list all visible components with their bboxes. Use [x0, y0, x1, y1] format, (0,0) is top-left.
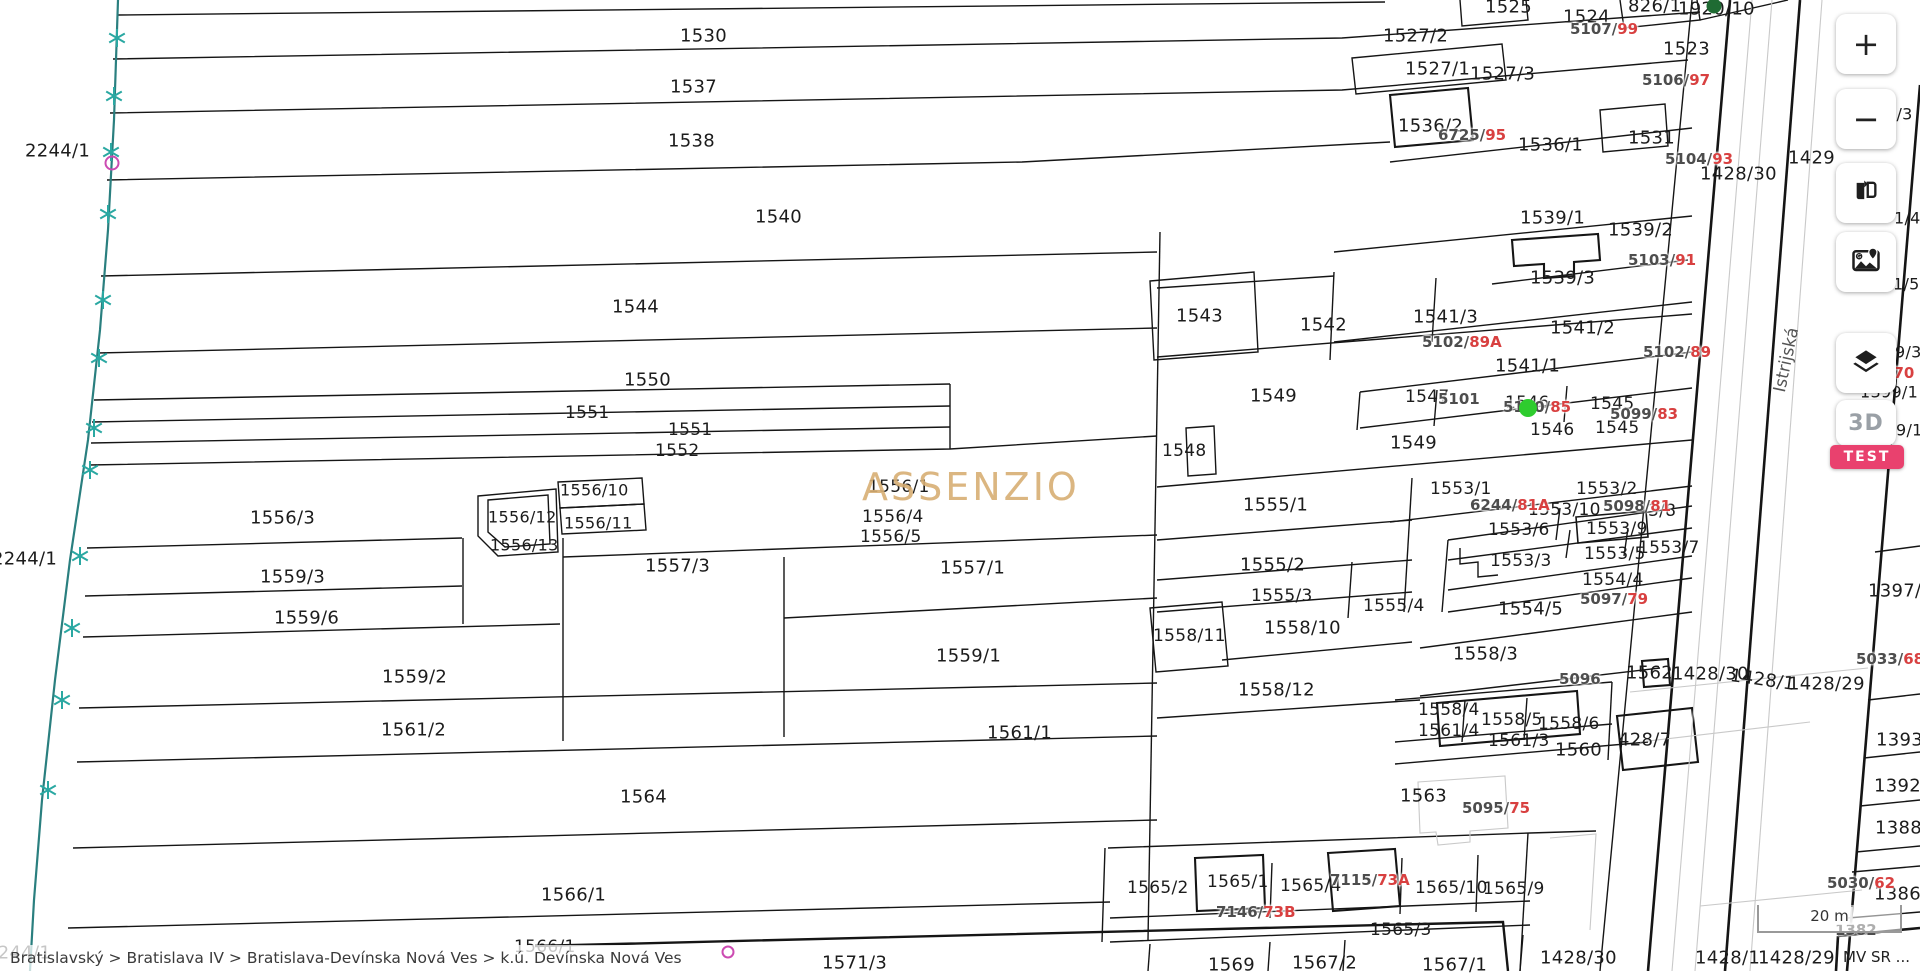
survey-point-marker: [105, 156, 120, 171]
parcel-label: 1549: [1250, 386, 1297, 407]
parcel-label: 1556/4: [862, 507, 924, 527]
register-parcel-label: 5033/68: [1856, 650, 1920, 668]
parcel-label: 1560: [1555, 740, 1602, 761]
parcel-label: 1555/3: [1251, 586, 1313, 606]
parcel-label: 1569: [1208, 955, 1255, 976]
parcel-label: 1553/6: [1488, 520, 1550, 540]
parcel-label: 1551: [565, 403, 609, 423]
parcel-label: 1556/5: [860, 527, 922, 547]
parcel-label: 9/1: [1896, 421, 1920, 440]
parcel-label: 1541/3: [1413, 307, 1478, 328]
parcel-label: 1537: [670, 77, 717, 98]
parcel-label: 1553/3: [1490, 551, 1552, 571]
parcel-label: 1550: [624, 370, 671, 391]
parcel-label: 1563: [1400, 786, 1447, 807]
stream-cross-symbol: [53, 691, 71, 709]
parcel-label: 9/3: [1895, 343, 1920, 362]
parcel-label: 1557/3: [645, 556, 710, 577]
compare-panels-icon: [1852, 177, 1880, 209]
photo-pin-icon: G: [1851, 245, 1881, 279]
parcel-label: 1556/10: [560, 481, 629, 500]
parcel-label: 1571/3: [822, 953, 887, 974]
stream-cross-symbol: [105, 87, 123, 105]
parcel-label: 1553/9: [1586, 519, 1648, 539]
parcel-label: 1561/2: [381, 720, 446, 741]
register-parcel-label: 5095/75: [1462, 799, 1530, 817]
parcel-label: 1559/3: [260, 567, 325, 588]
compare-maps-button[interactable]: [1836, 163, 1896, 223]
stream-cross-symbol: [108, 29, 126, 47]
parcel-label: 1551: [668, 420, 712, 440]
parcel-label: 1538: [668, 131, 715, 152]
parcel-label: 1556/11: [564, 514, 633, 533]
parcel-label: 1561/1: [987, 723, 1052, 744]
register-parcel-label: 5104/93: [1665, 150, 1733, 168]
stream-cross-symbol: [99, 205, 117, 223]
register-parcel-label: 5106/97: [1642, 71, 1710, 89]
register-parcel-label: 6244/81A: [1470, 496, 1550, 514]
parcel-label: 1397/1: [1868, 581, 1920, 602]
register-parcel-label: 5098/81: [1603, 497, 1671, 515]
register-parcel-label: 5101: [1438, 390, 1480, 408]
layers-icon: [1851, 346, 1881, 380]
parcel-label: 1556/12: [488, 508, 557, 527]
parcel-label: 1546: [1530, 420, 1574, 440]
parcel-label: 1559/2: [382, 667, 447, 688]
parcel-label: 1549: [1390, 433, 1437, 454]
parcel-label: 1548: [1162, 441, 1206, 461]
three-d-label: 3D: [1848, 411, 1884, 436]
map-attribution: MV SR ...: [1843, 948, 1910, 966]
register-parcel-label: 7146/73B: [1216, 903, 1296, 921]
register-parcel-label: 6725/95: [1438, 126, 1506, 144]
parcel-label: 1565/9: [1483, 879, 1545, 899]
parcel-label: 1553/5: [1584, 544, 1646, 564]
parcel-label: 1552: [655, 441, 699, 461]
parcel-label: 1555/1: [1243, 495, 1308, 516]
parcel-label: 1428/29: [1788, 674, 1865, 695]
parcel-label: 1558/11: [1153, 626, 1226, 646]
zoom-out-button[interactable]: −: [1836, 89, 1896, 149]
parcel-label: 1539/1: [1520, 208, 1585, 229]
register-parcel-label: 5030/62: [1827, 874, 1895, 892]
parcel-label: 1558/12: [1238, 680, 1315, 701]
street-view-button[interactable]: G: [1836, 232, 1896, 292]
survey-point-marker: [722, 946, 735, 959]
parcel-label: 1544: [612, 297, 659, 318]
parcel-label: 1527/3: [1470, 64, 1535, 85]
parcel-label: 2244/1: [0, 549, 57, 570]
parcel-label: 1525: [1485, 0, 1532, 18]
parcel-label: 1558/3: [1453, 644, 1518, 665]
parcel-label: 1531: [1628, 128, 1675, 149]
parcel-label: 1565/3: [1370, 920, 1432, 940]
parcel-label: 2244/1: [25, 141, 90, 162]
stream-cross-symbol: [63, 619, 81, 637]
minus-icon: −: [1853, 103, 1880, 135]
parcel-label: 1539/2: [1608, 220, 1673, 241]
parcel-label: 1565/2: [1127, 878, 1189, 898]
parcel-label: 1555/4: [1363, 596, 1425, 616]
parcel-label: 1541/2: [1550, 318, 1615, 339]
register-parcel-label: 5102/89A: [1422, 333, 1502, 351]
parcel-label: 1523: [1663, 39, 1710, 60]
layers-button[interactable]: [1836, 333, 1896, 393]
scale-bar-label: 20 m: [1806, 907, 1852, 925]
parcel-label: 1553/2: [1576, 479, 1638, 499]
parcel-label: 826/1: [1628, 0, 1681, 17]
stream-cross-symbol: [81, 461, 99, 479]
parcel-label: 1564: [620, 787, 667, 808]
parcel-label: 1541/1: [1495, 356, 1560, 377]
parcel-label: 1527/1: [1405, 59, 1470, 80]
parcel-label: 1393: [1876, 730, 1920, 751]
stream-cross-symbol: [90, 349, 108, 367]
parcel-label: 1554/4: [1582, 570, 1644, 590]
parcel-label: 1554/5: [1498, 599, 1563, 620]
parcel-label: 1558/4: [1418, 700, 1480, 720]
three-d-button[interactable]: 3D: [1836, 400, 1896, 446]
parcel-label: 1555/2: [1240, 555, 1305, 576]
watermark: ASSENZIO: [862, 465, 1080, 509]
test-badge: TEST: [1830, 445, 1904, 469]
parcel-label: 1556/13: [490, 536, 559, 555]
zoom-in-button[interactable]: +: [1836, 14, 1896, 74]
parcel-label: 1428/30: [1540, 948, 1617, 969]
parcel-label: 1558/10: [1264, 618, 1341, 639]
parcel-label: 1429: [1788, 148, 1835, 169]
register-parcel-label: 5096: [1559, 670, 1601, 688]
register-parcel-label: 5099/83: [1610, 405, 1678, 423]
parcel-label: 1428/1: [1695, 948, 1760, 969]
register-parcel-label: 5102/89: [1643, 343, 1711, 361]
parcel-label: 1558/5: [1481, 710, 1543, 730]
register-parcel-label: 5100/85: [1503, 398, 1571, 416]
parcel-label: 1566/1: [541, 885, 606, 906]
parcel-label: 1561/3: [1488, 731, 1550, 751]
parcel-label: 1565/10: [1415, 878, 1488, 898]
parcel-label: 1530: [680, 26, 727, 47]
plus-icon: +: [1853, 28, 1880, 60]
parcel-label: 1/5: [1893, 275, 1920, 294]
parcel-label: 1556/3: [250, 508, 315, 529]
stream-cross-symbol: [85, 419, 103, 437]
map-canvas[interactable]: 2244/12244/12244/11530153715381540154415…: [0, 0, 1920, 971]
parcel-label: 428/7: [1618, 730, 1671, 751]
register-parcel-label: 5097/79: [1580, 590, 1648, 608]
breadcrumb[interactable]: Bratislavský > Bratislava IV > Bratislav…: [0, 945, 692, 971]
parcel-label: 1565/1: [1207, 872, 1269, 892]
selected-point-marker: [1519, 399, 1537, 417]
stream-cross-symbol: [71, 547, 89, 565]
parcel-label: 1540: [755, 207, 802, 228]
parcel-label: 1559/1: [936, 646, 1001, 667]
parcel-label: 1527/2: [1383, 26, 1448, 47]
parcel-label: 1388: [1875, 818, 1920, 839]
stream-cross-symbol: [39, 781, 57, 799]
register-parcel-label: 7115/73A: [1330, 871, 1410, 889]
parcel-label: 1428/29: [1758, 948, 1835, 969]
svg-text:G: G: [1857, 254, 1861, 260]
parcel-label: 1561/4: [1418, 721, 1480, 741]
parcel-label: 1562: [1626, 663, 1673, 684]
parcel-label: 1567/2: [1292, 953, 1357, 974]
parcel-label: 1539/3: [1530, 268, 1595, 289]
parcel-label: 1557/1: [940, 558, 1005, 579]
parcel-label: 1553/7: [1638, 538, 1700, 558]
stream-cross-symbol: [94, 291, 112, 309]
parcel-label: 1542: [1300, 315, 1347, 336]
register-parcel-label: 5107/99: [1570, 20, 1638, 38]
parcel-label: 1392: [1874, 776, 1920, 797]
parcel-label: 1559/6: [274, 608, 339, 629]
register-parcel-label: 5103/91: [1628, 251, 1696, 269]
scale-bar: 20 m: [1757, 905, 1902, 933]
parcel-label: 1543: [1176, 306, 1223, 327]
parcel-label: 1/4: [1894, 209, 1920, 228]
parcel-label: 1536/1: [1518, 135, 1583, 156]
parcel-label: 1567/1: [1422, 955, 1487, 976]
